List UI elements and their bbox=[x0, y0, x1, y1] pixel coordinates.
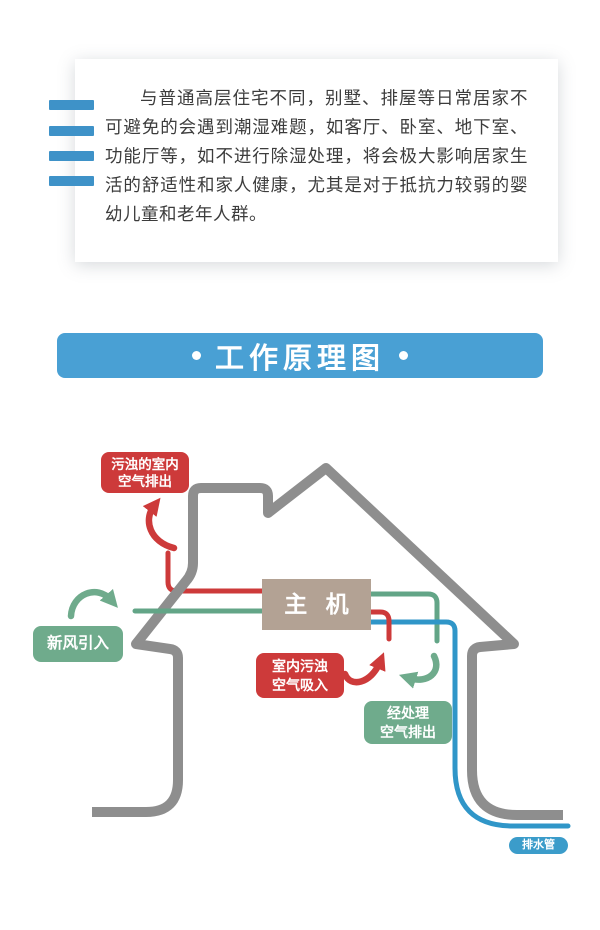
label-line: 经处理 bbox=[387, 705, 429, 721]
label-line: 新风引入 bbox=[47, 635, 109, 652]
label-line: 污浊的室内 bbox=[111, 457, 179, 472]
label-dirty-air-in: 室内污浊 空气吸入 bbox=[256, 653, 344, 698]
accent-bar-icon bbox=[49, 100, 94, 110]
label-line: 空气排出 bbox=[380, 724, 436, 740]
fresh-air-in-arrow-icon bbox=[71, 592, 111, 616]
dirty-air-suction-arrow-icon bbox=[345, 662, 380, 682]
label-drain-pipe: 排水管 bbox=[509, 837, 568, 854]
label-treated-air-out: 经处理 空气排出 bbox=[364, 701, 452, 744]
label-line: 空气排出 bbox=[118, 474, 172, 489]
label-line: 排水管 bbox=[522, 839, 555, 851]
house-outline bbox=[92, 468, 563, 815]
treated-air-out-arrow-icon bbox=[409, 656, 436, 680]
accent-bar-icon bbox=[49, 176, 94, 186]
accent-bar-icon bbox=[49, 126, 94, 136]
label-line: 室内污浊 bbox=[272, 658, 328, 674]
accent-bar-icon bbox=[49, 151, 94, 161]
working-principle-diagram bbox=[0, 0, 600, 930]
label-line: 主 机 bbox=[284, 591, 354, 617]
label-line: 空气吸入 bbox=[272, 677, 328, 693]
label-fresh-air-in: 新风引入 bbox=[33, 626, 123, 662]
dirty-air-out-arrow-icon bbox=[149, 506, 174, 548]
label-main-unit: 主 机 bbox=[262, 579, 371, 630]
label-dirty-air-out: 污浊的室内 空气排出 bbox=[101, 452, 189, 493]
